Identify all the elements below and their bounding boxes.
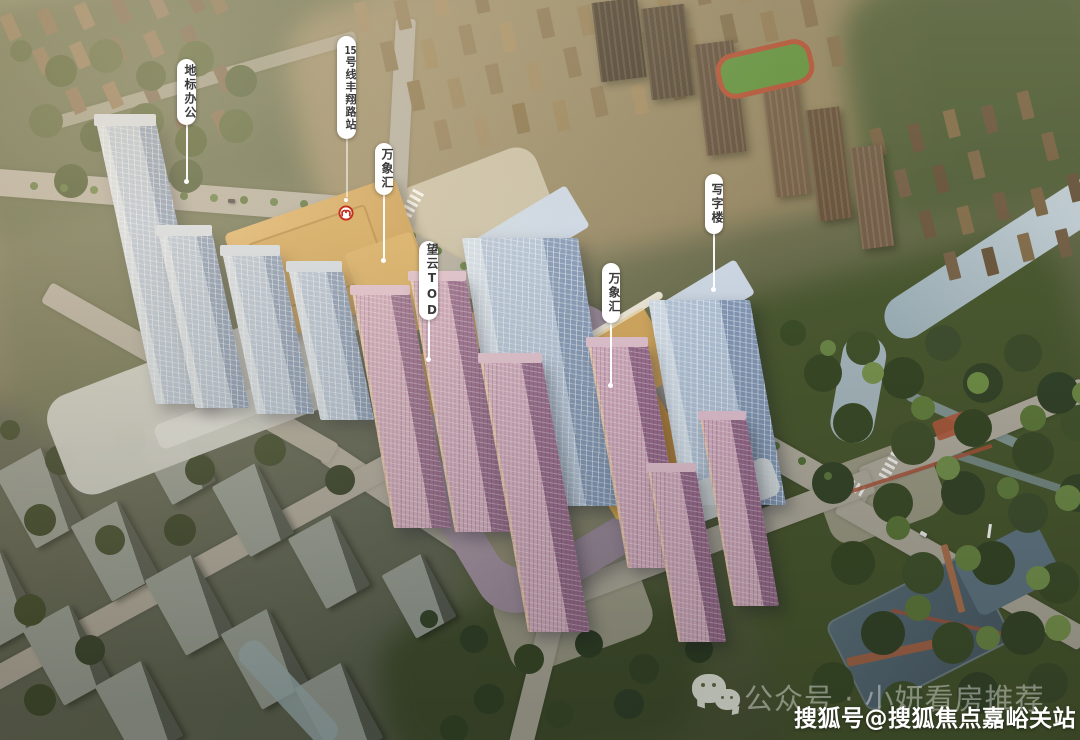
leader-dot — [711, 287, 716, 292]
street-trees-west — [30, 182, 38, 190]
tree-cluster-bottomleft — [0, 420, 20, 440]
leader-line — [713, 234, 715, 287]
shanghai-metro-logo-icon — [338, 205, 354, 221]
tower-roof — [350, 285, 410, 295]
wechat-bubble-large-tail — [697, 698, 705, 709]
tower-roof — [478, 353, 542, 363]
callout-label: 写字楼 — [710, 183, 724, 225]
leader-line — [428, 320, 430, 357]
wechat-bubbles-icon — [692, 672, 746, 724]
metro-station-marker — [338, 205, 354, 221]
callout-landmark-office: 地标办公 — [177, 59, 196, 125]
callout-metro-line15-station: 15号线丰翔路站 — [337, 36, 356, 139]
leader-line — [186, 125, 188, 181]
leader-dot — [608, 383, 613, 388]
leader-line — [346, 139, 348, 197]
tower-roof — [156, 225, 212, 236]
sohu-watermark-text: 搜狐号@搜狐焦点嘉峪关站 — [794, 699, 1076, 733]
tower-roof — [646, 463, 696, 472]
car — [228, 199, 235, 203]
callout-office-building: 写字楼 — [705, 174, 723, 234]
tower-roof — [586, 337, 648, 347]
tower-roof — [220, 245, 280, 256]
tower-roof — [286, 261, 342, 272]
callout-label: 万象汇 — [607, 272, 621, 314]
tree-cluster-bottomcenter — [420, 610, 438, 628]
callout-label-prefix: 15 — [344, 45, 357, 56]
callout-mixc-hui-mall: 万象汇 — [602, 263, 620, 323]
callout-label-rest: 号线丰翔路站 — [344, 56, 357, 131]
callout-label: 望云TOD — [425, 243, 439, 319]
metro-marker-dot — [344, 198, 348, 202]
tree-cluster-park-light — [820, 340, 836, 356]
leader-dot — [184, 179, 189, 184]
tree-cluster-topleft — [10, 40, 32, 62]
aerial-render-scene: 地标办公 15号线丰翔路站 万象汇 望云TOD 万象汇 写字楼 公众号 · 小妍… — [0, 0, 1080, 740]
callout-label: 万象汇 — [380, 148, 394, 190]
wechat-eye — [701, 683, 705, 687]
callout-label: 地标办公 — [183, 64, 197, 120]
leader-line — [610, 323, 612, 383]
tower-roof — [698, 411, 746, 420]
dark-highrise — [591, 0, 646, 83]
leader-dot — [381, 258, 386, 263]
tree-cluster-park-dark — [780, 320, 806, 346]
tower-roof — [94, 114, 156, 126]
wechat-eye — [730, 696, 733, 699]
leader-dot — [426, 357, 431, 362]
wechat-eye — [721, 696, 724, 699]
wechat-bubble-small-tail — [732, 706, 740, 715]
leader-line — [383, 195, 385, 258]
callout-mixc-hui-north: 万象汇 — [375, 143, 393, 195]
wechat-eye — [712, 683, 716, 687]
callout-wangyun-tod: 望云TOD — [419, 241, 438, 320]
